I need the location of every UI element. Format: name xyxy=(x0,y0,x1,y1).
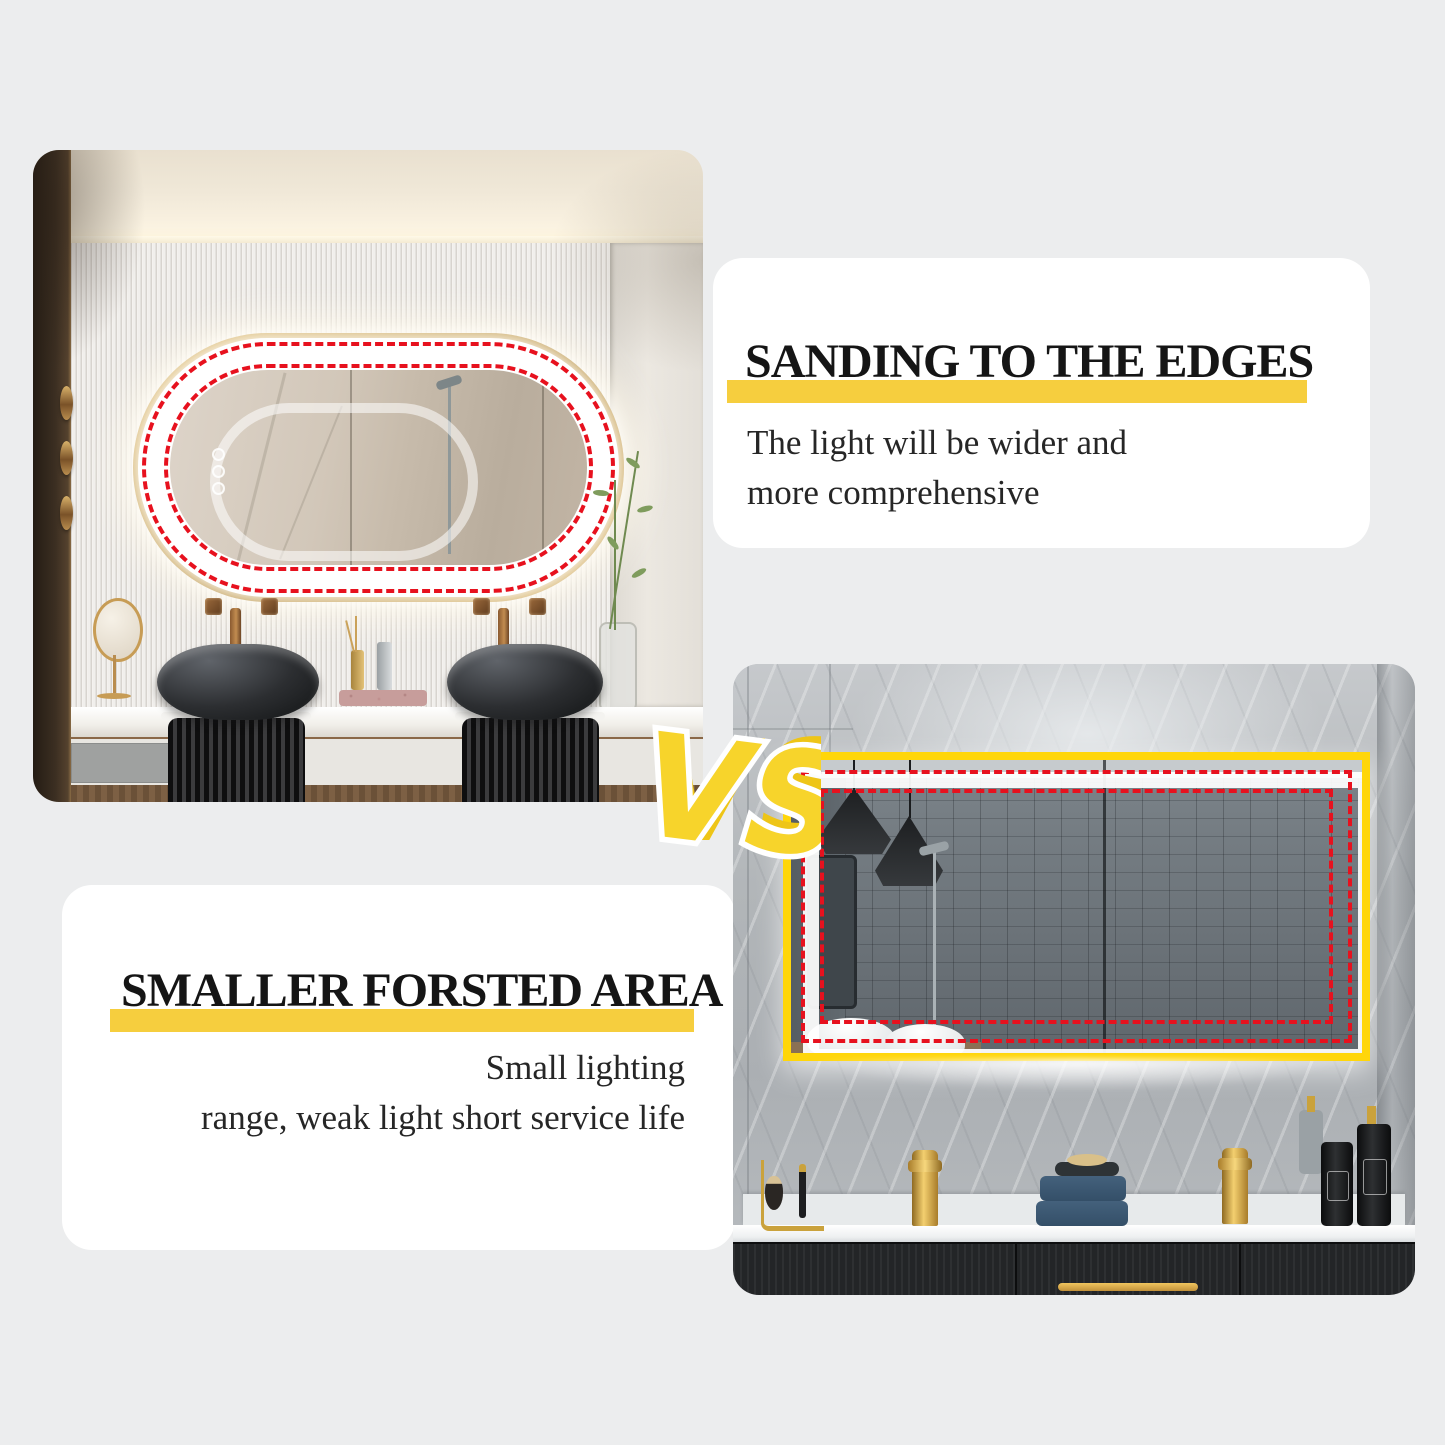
frosted-panel: SMALLER FORSTED AREA Small lighting rang… xyxy=(62,885,735,1250)
soap-bar xyxy=(1067,1154,1107,1166)
black-soap-bottle xyxy=(1321,1142,1353,1226)
sanding-description: The light will be wider and more compreh… xyxy=(747,418,1127,518)
drawer-seam xyxy=(1239,1244,1241,1295)
good-mirror-photo xyxy=(33,150,703,802)
black-soap-bottle xyxy=(1357,1124,1391,1226)
makeup-mirror-base xyxy=(97,693,131,699)
frosted-description: Small lighting range, weak light short s… xyxy=(62,1043,685,1143)
fluted-pedestal xyxy=(168,718,305,802)
bottle-label xyxy=(1327,1171,1349,1202)
vanity-tray xyxy=(339,690,427,706)
rect-led-mirror xyxy=(783,752,1370,1061)
sanding-line1: The light will be wider and xyxy=(747,418,1127,468)
glass-vase xyxy=(599,622,637,712)
vs-front-layer: VS xyxy=(613,704,821,884)
wall-sconce xyxy=(60,386,73,420)
makeup-mirror xyxy=(93,598,143,662)
sanding-line2: more comprehensive xyxy=(747,468,1127,518)
tile-grout xyxy=(829,664,831,754)
faucet-handle xyxy=(529,598,546,615)
shaving-brush xyxy=(765,1176,783,1210)
perfume-bottle xyxy=(351,650,364,690)
frosted-line1: Small lighting xyxy=(62,1043,685,1093)
gray-dispenser xyxy=(1299,1110,1323,1174)
drawer-seam xyxy=(1015,1244,1017,1295)
razor xyxy=(799,1164,806,1218)
drawer-gold-handle xyxy=(1058,1283,1198,1291)
gold-faucet xyxy=(912,1150,938,1226)
wall-sconce xyxy=(60,441,73,475)
red-dash-outline-inner xyxy=(164,364,593,571)
navy-towel xyxy=(1040,1176,1126,1201)
red-dash-outline-inner xyxy=(820,789,1333,1024)
sanding-heading: SANDING TO THE EDGES xyxy=(745,334,1313,389)
oval-led-mirror xyxy=(133,333,624,602)
faucet-handle xyxy=(261,598,278,615)
black-vessel-sink xyxy=(447,644,603,720)
mirror-glass xyxy=(791,760,1362,1053)
counter-top xyxy=(733,1225,1415,1242)
bottle-label xyxy=(1363,1159,1387,1196)
black-vessel-sink xyxy=(157,644,319,720)
perfume-bottle xyxy=(377,642,392,690)
frosted-line2: range, weak light short service life xyxy=(62,1093,685,1143)
cabinet-door xyxy=(71,743,173,783)
sanding-panel: SANDING TO THE EDGES The light will be w… xyxy=(713,258,1370,548)
diffuser-stick xyxy=(355,616,357,652)
faucet-handle xyxy=(205,598,222,615)
gold-faucet xyxy=(1222,1148,1248,1224)
wall-sconce xyxy=(60,496,73,530)
dispenser-pump xyxy=(1307,1096,1315,1112)
vs-text: VS xyxy=(617,704,821,884)
dispenser-pump xyxy=(1367,1106,1376,1126)
faucet-handle xyxy=(473,598,490,615)
led-backlight-glow xyxy=(769,1059,1385,1101)
frosted-heading: SMALLER FORSTED AREA xyxy=(121,963,722,1018)
dark-side-wall xyxy=(33,150,71,802)
vs-badge: VS VS xyxy=(606,704,821,884)
makeup-mirror-stem xyxy=(113,655,116,693)
dark-cabinet xyxy=(733,1242,1415,1295)
fluted-pedestal xyxy=(462,718,599,802)
bad-mirror-photo xyxy=(733,664,1415,1295)
ceiling xyxy=(33,150,703,243)
